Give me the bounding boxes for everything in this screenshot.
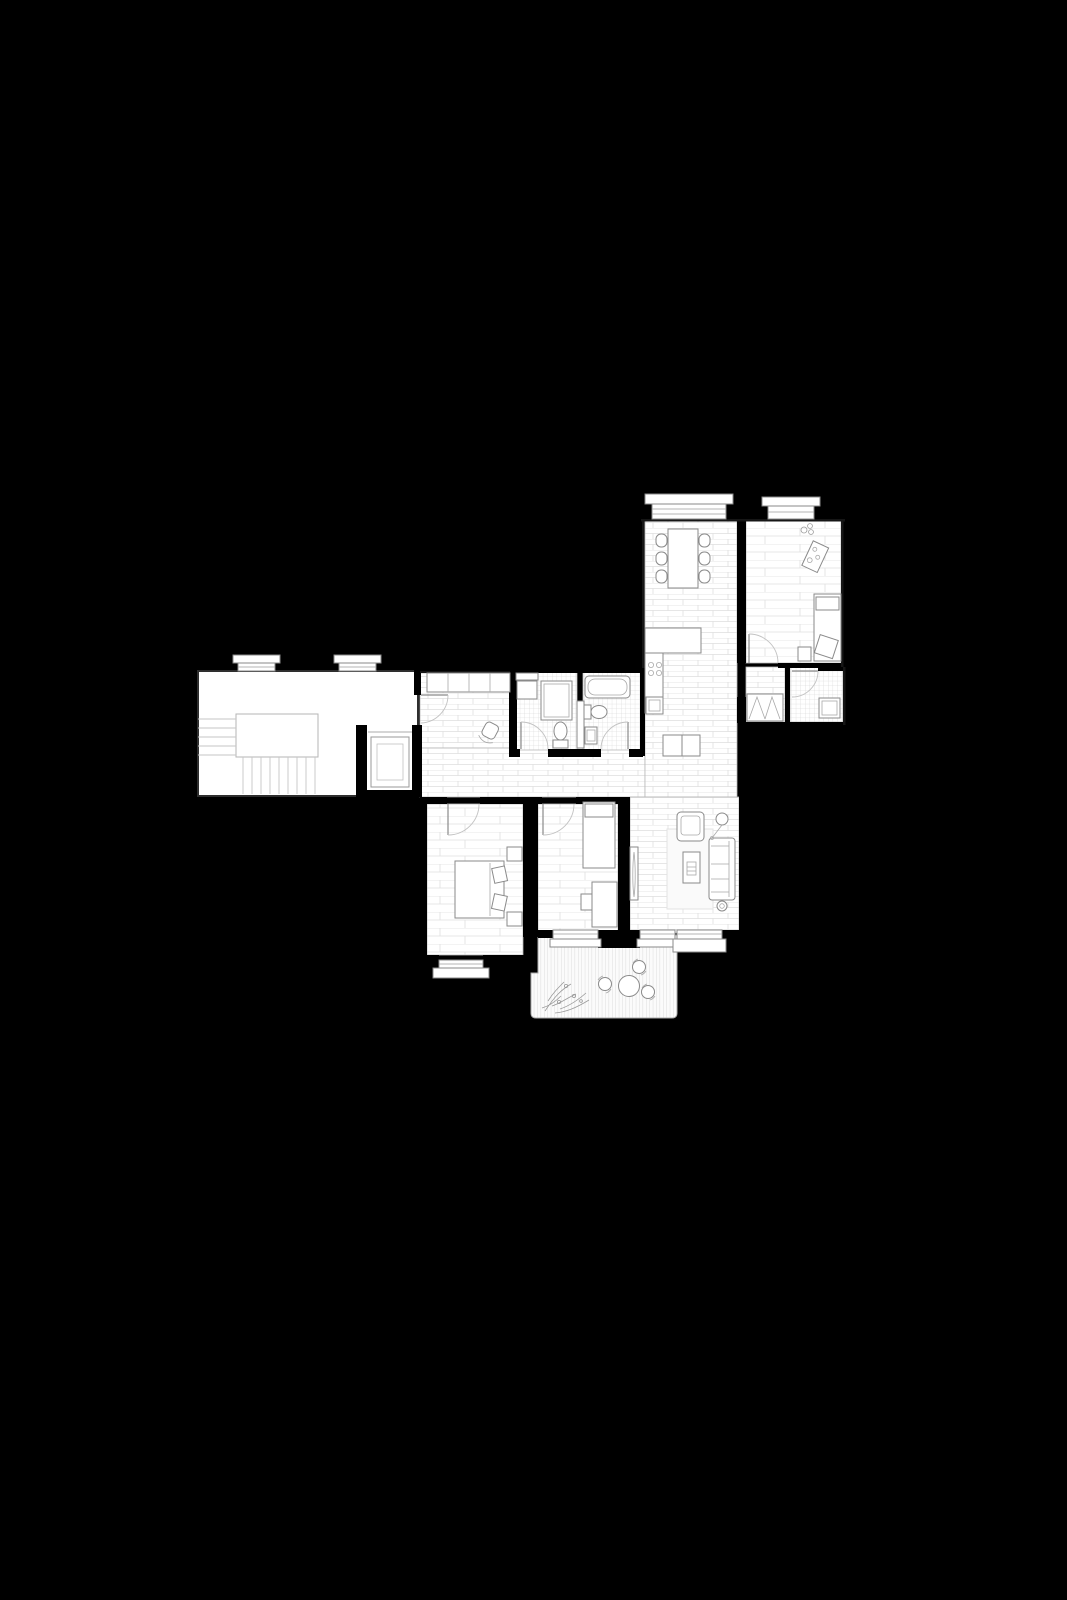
floor-plan-canvas	[0, 0, 1067, 1600]
bedroom-sw-window	[433, 960, 489, 978]
toilet	[553, 722, 568, 748]
nightstand	[507, 912, 522, 926]
dining-table	[668, 529, 698, 588]
living-window	[673, 930, 726, 952]
pillow	[816, 597, 839, 610]
desk	[592, 882, 617, 927]
nightstand	[507, 847, 522, 861]
desk-chair	[581, 894, 592, 910]
washing-machine	[517, 681, 537, 699]
stair-window-1	[233, 655, 280, 671]
terrace-chair	[599, 978, 612, 991]
coffee-table	[683, 852, 700, 883]
room-corridor	[420, 748, 645, 797]
folding-closet	[747, 694, 783, 721]
pillow	[492, 866, 508, 883]
oven	[646, 697, 663, 714]
bedroom-s-furniture	[581, 802, 617, 927]
terrace-chair	[642, 986, 655, 999]
kitchen-base-unit	[663, 735, 682, 756]
floor-plan-svg	[0, 0, 1067, 1600]
bathroom-utility-furniture	[819, 698, 840, 718]
inner-hall-ne-furniture	[747, 694, 783, 721]
wardrobe-row	[427, 673, 510, 692]
room-stairwell	[198, 655, 425, 798]
bedroom-ne-window	[762, 497, 820, 519]
terrace-chair	[633, 961, 646, 974]
stair-window-2	[334, 655, 381, 671]
round-table	[619, 976, 640, 997]
pocket-door-leaf	[577, 701, 584, 748]
living-terrace-door	[637, 930, 678, 947]
pillow	[491, 894, 507, 911]
shelf	[516, 673, 538, 680]
stair-landing	[236, 714, 318, 757]
kitchen-base-unit	[682, 735, 700, 756]
toilet	[584, 705, 607, 719]
bedroom-s-terrace-door	[550, 930, 601, 947]
shower-cabin	[541, 681, 572, 720]
round-side-table	[717, 901, 727, 911]
sofa	[709, 838, 735, 900]
kitchen-window	[645, 494, 733, 519]
pillow	[585, 804, 613, 817]
kitchen-counter-peninsula	[645, 628, 701, 653]
nightstand	[798, 647, 811, 661]
tv-unit	[630, 847, 638, 900]
